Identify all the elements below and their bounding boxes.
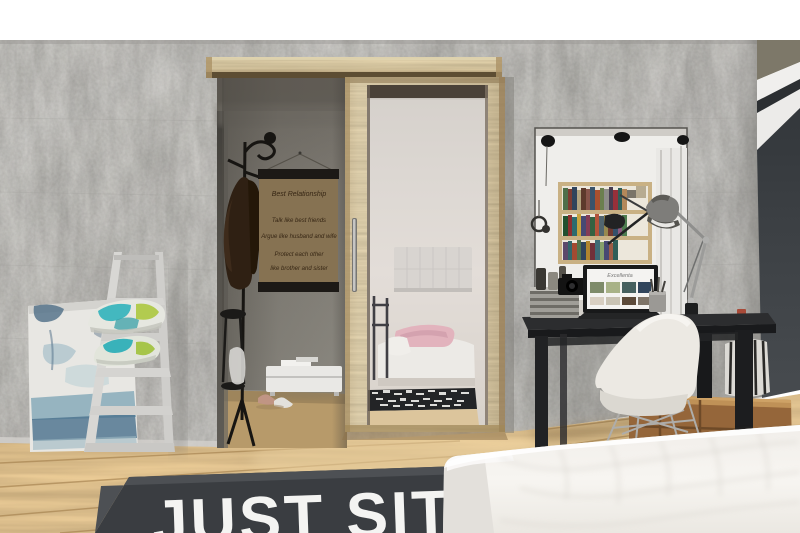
svg-text:Talk like best friends: Talk like best friends (272, 218, 326, 224)
svg-text:Argue like husband and wife: Argue like husband and wife (260, 234, 337, 240)
svg-text:like brother and sister: like brother and sister (270, 266, 328, 272)
svg-text:Protect each other: Protect each other (274, 252, 324, 258)
svg-text:Best Relationship: Best Relationship (272, 191, 327, 198)
svg-text:Excellenta: Excellenta (607, 273, 632, 279)
svg-text:JUST SIT: JUST SIT (151, 478, 454, 533)
